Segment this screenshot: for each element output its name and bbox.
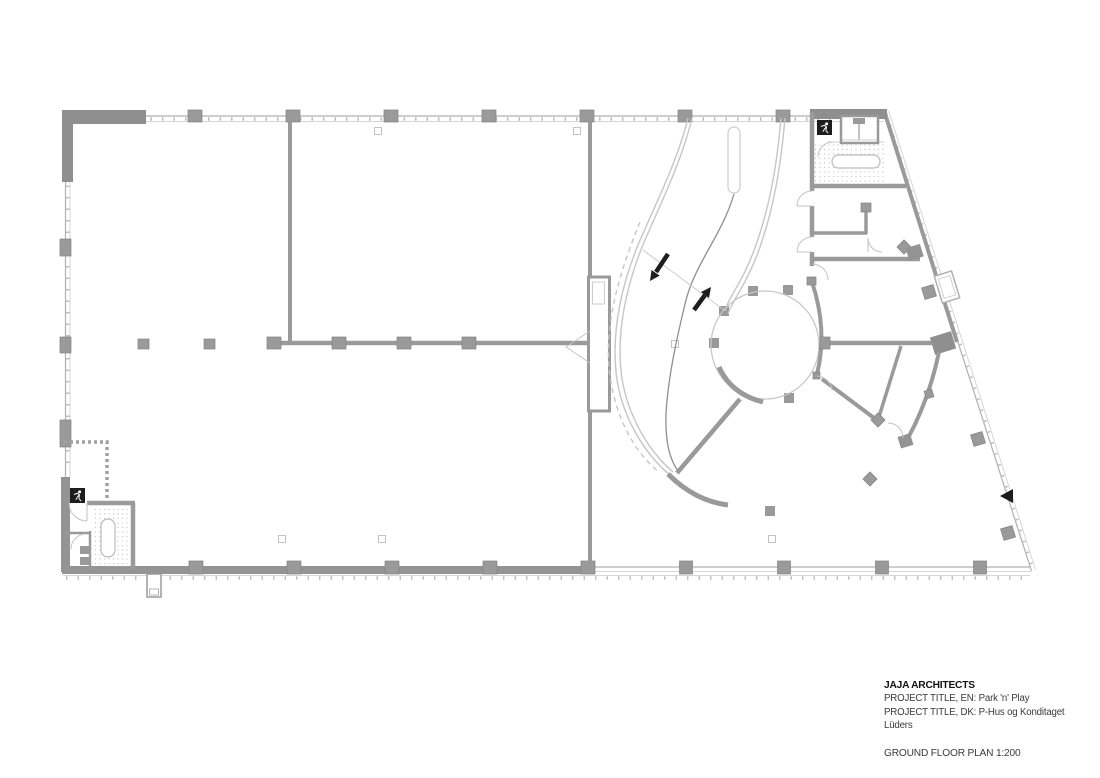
stair-core-northeast bbox=[814, 116, 884, 185]
parking-ramp bbox=[608, 118, 785, 476]
south-wall bbox=[62, 566, 593, 574]
entrance-arrow-icon bbox=[1000, 489, 1013, 503]
corner-nw bbox=[62, 110, 146, 124]
stair-handrail bbox=[101, 519, 115, 557]
drawing-title: GROUND FLOOR PLAN 1:200 bbox=[884, 747, 1094, 759]
lift-shaft bbox=[589, 277, 610, 411]
architect-name: JAJA ARCHITECTS bbox=[884, 678, 1094, 692]
exit-sign-icon bbox=[817, 120, 832, 135]
drawing-sheet: JAJA ARCHITECTS PROJECT TITLE, EN: Park … bbox=[0, 0, 1100, 778]
exit-sign-icon bbox=[70, 488, 85, 503]
ramp-down-arrow-icon bbox=[650, 254, 668, 281]
project-title-dk: PROJECT TITLE, DK: P-Hus og Konditaget L… bbox=[884, 706, 1094, 733]
fan-room-southeast bbox=[807, 277, 956, 448]
ramp-slope-line bbox=[643, 250, 724, 310]
circle-arc-wall bbox=[719, 367, 763, 402]
shaft-door-mark bbox=[566, 331, 590, 363]
facade-element bbox=[934, 271, 959, 303]
central-circle-core bbox=[668, 291, 819, 505]
project-title-en: PROJECT TITLE, EN: Park 'n' Play bbox=[884, 692, 1094, 706]
radial-wall bbox=[677, 399, 740, 473]
title-block: JAJA ARCHITECTS PROJECT TITLE, EN: Park … bbox=[884, 678, 1094, 759]
floor-plan-canvas bbox=[0, 0, 1100, 778]
ramp-lane-divider bbox=[666, 194, 734, 471]
stair-handrail bbox=[832, 155, 880, 168]
interior-walls-west bbox=[267, 117, 610, 570]
diagonal-wall-thick bbox=[885, 112, 958, 342]
ramp-island bbox=[728, 127, 740, 193]
outer-arc-wall bbox=[668, 474, 728, 505]
exterior-stair bbox=[147, 574, 161, 597]
west-wall-thick bbox=[61, 477, 70, 572]
